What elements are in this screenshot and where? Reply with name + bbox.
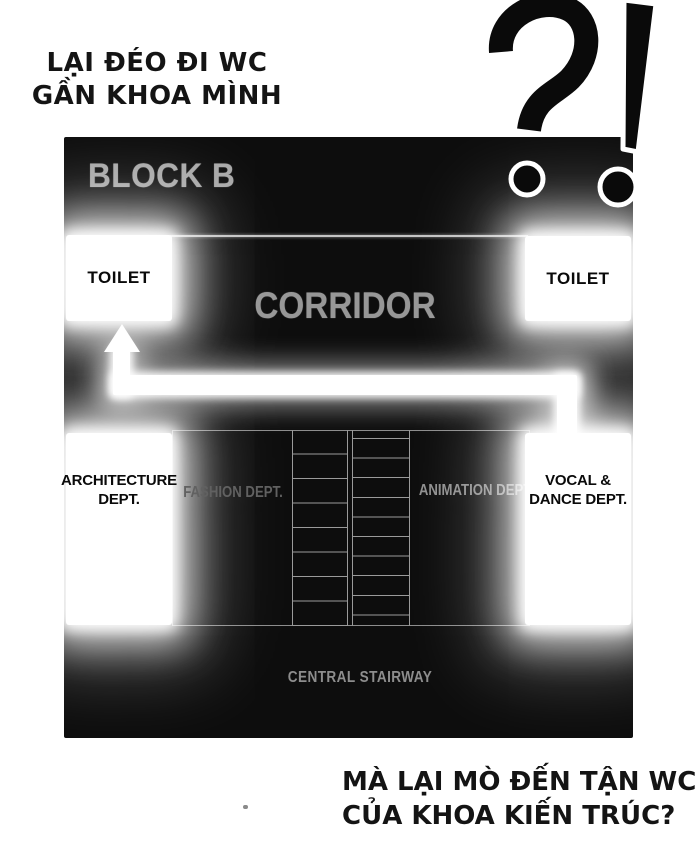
interjection-marks-icon — [478, 0, 670, 220]
ink-speck — [243, 805, 248, 809]
speech-bottom-line-2: CỦA KHOA KIẾN TRÚC? — [342, 799, 672, 833]
exclamation-bar — [623, 0, 656, 152]
departments-row-outline — [172, 430, 530, 626]
stairway-ladder-left-icon — [292, 430, 348, 626]
stairway-ladder-right-icon — [352, 430, 410, 626]
toilet-left-label: TOILET — [87, 268, 150, 288]
animation-dept-label: ANIMATION DEPT. — [419, 482, 519, 500]
vocal-dance-dept-line-1: VOCAL & — [545, 471, 611, 490]
fashion-dept-label: FASHION DEPT. — [183, 484, 283, 502]
speech-top-line-2: GẦN KHOA MÌNH — [22, 80, 292, 113]
map-title: BLOCK B — [88, 157, 235, 196]
architecture-dept-room: ARCHITECTURE DEPT. — [66, 433, 172, 625]
question-mark-dot — [511, 163, 543, 195]
vocal-dance-dept-line-2: DANCE DEPT. — [529, 490, 627, 509]
route-arrow-end-segment — [113, 349, 130, 395]
architecture-dept-line-2: DEPT. — [98, 490, 140, 509]
architecture-dept-line-1: ARCHITECTURE — [61, 471, 177, 490]
central-stairway-label: CENTRAL STAIRWAY — [250, 669, 471, 687]
toilet-right-label: TOILET — [546, 269, 609, 289]
corridor-top-wall-line — [170, 235, 528, 237]
toilet-room-right: TOILET — [525, 236, 631, 321]
comic-page: { "top_caption": { "line1": "LẠI ĐÉO ĐI … — [0, 0, 700, 850]
route-arrow-head-icon — [104, 324, 140, 352]
speech-top-line-1: LẠI ĐÉO ĐI WC — [22, 47, 292, 80]
vocal-dance-dept-room: VOCAL & DANCE DEPT. — [525, 433, 631, 625]
toilet-room-left: TOILET — [66, 235, 172, 321]
corridor-label: CORRIDOR — [236, 285, 454, 327]
route-arrow-shaft — [113, 375, 577, 395]
exclamation-dot — [600, 169, 636, 205]
speech-text-top: LẠI ĐÉO ĐI WC GẦN KHOA MÌNH — [22, 47, 292, 113]
speech-text-bottom: MÀ LẠI MÒ ĐẾN TẬN WC CỦA KHOA KIẾN TRÚC? — [342, 765, 672, 833]
speech-bottom-line-1: MÀ LẠI MÒ ĐẾN TẬN WC — [342, 765, 672, 799]
map-panel: BLOCK B CORRIDOR TOILET TOILET ARCHITECT… — [64, 137, 633, 738]
